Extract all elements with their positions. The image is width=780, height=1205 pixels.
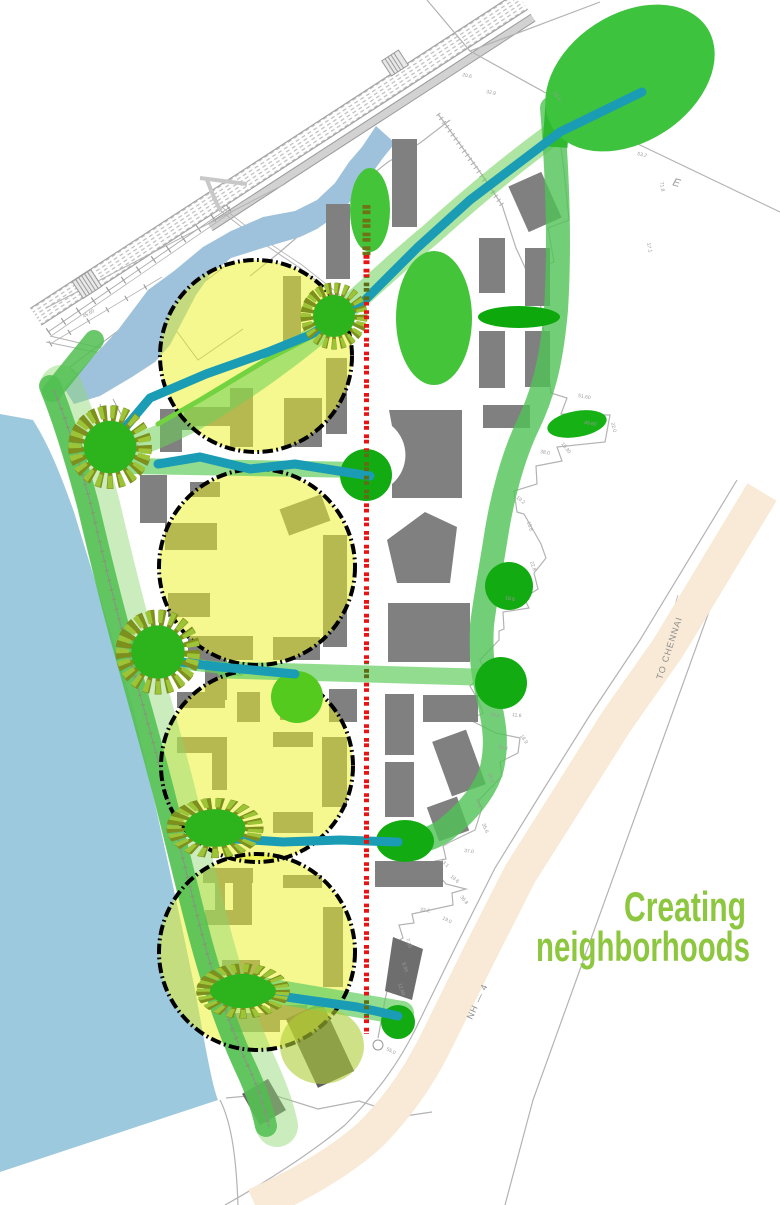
svg-text:32.2: 32.2 (420, 907, 431, 914)
svg-text:20.6: 20.6 (462, 72, 473, 80)
svg-text:38.0: 38.0 (540, 449, 551, 457)
svg-text:15.30: 15.30 (559, 442, 572, 456)
svg-text:17.1: 17.1 (645, 242, 653, 253)
svg-text:55.0: 55.0 (385, 1046, 397, 1056)
svg-text:51.60: 51.60 (578, 393, 592, 401)
svg-text:35.6: 35.6 (480, 823, 489, 834)
svg-text:19.0: 19.0 (441, 915, 453, 925)
svg-text:neighborhoods: neighborhoods (536, 923, 750, 970)
svg-text:22.0: 22.0 (609, 422, 617, 433)
svg-text:71.8: 71.8 (658, 181, 665, 192)
svg-text:19.6: 19.6 (449, 874, 460, 885)
svg-text:11.6: 11.6 (512, 712, 522, 719)
svg-text:E: E (671, 176, 682, 190)
svg-text:32.9: 32.9 (486, 89, 497, 97)
svg-text:36.8: 36.8 (458, 895, 469, 907)
svg-text:53.2: 53.2 (637, 151, 648, 159)
svg-text:13.8: 13.8 (525, 521, 534, 532)
svg-text:37.0: 37.0 (464, 848, 475, 855)
